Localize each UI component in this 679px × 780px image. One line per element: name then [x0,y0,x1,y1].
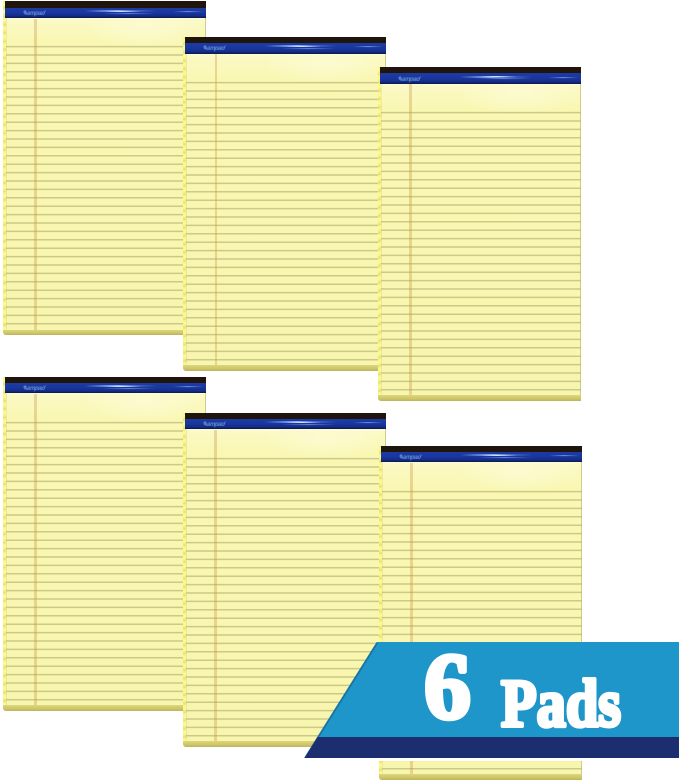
svg-text:6: 6 [424,635,471,739]
svg-text:Pads: Pads [501,665,621,741]
